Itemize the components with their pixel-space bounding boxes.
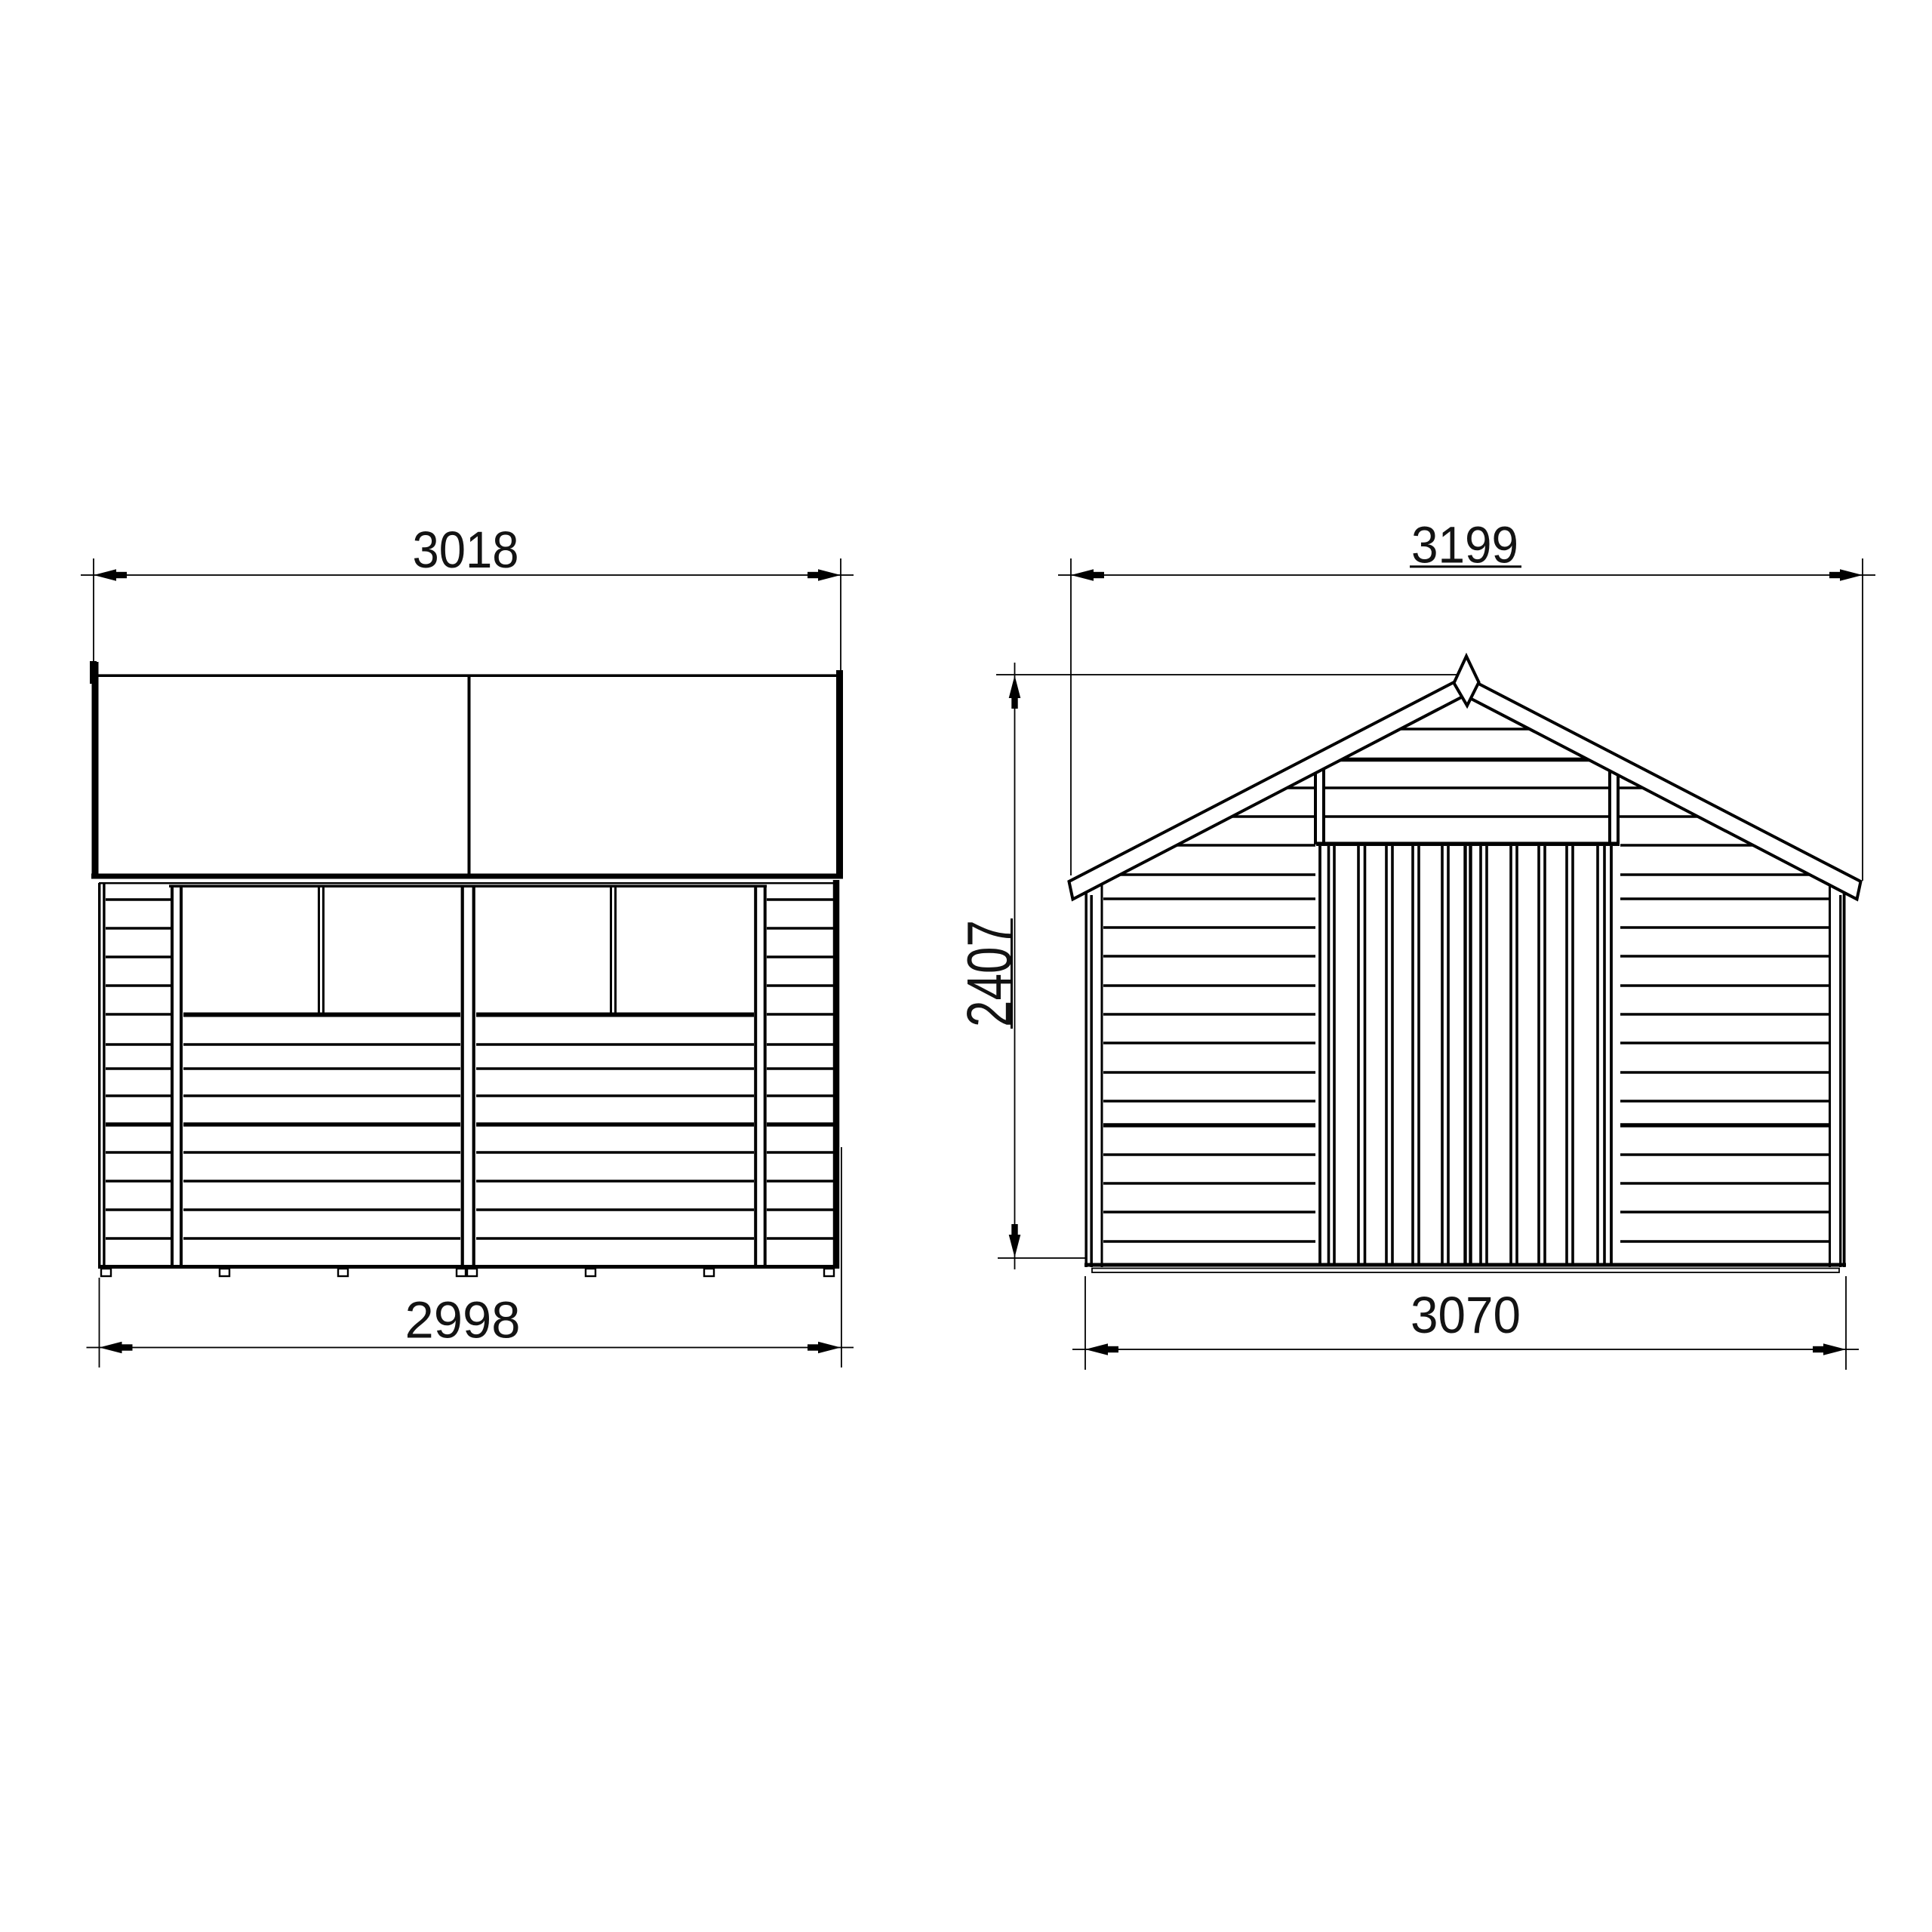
svg-text:3070: 3070 (1411, 1286, 1521, 1344)
svg-text:2407: 2407 (954, 920, 1024, 1027)
svg-text:2998: 2998 (405, 1291, 521, 1349)
svg-text:3018: 3018 (413, 521, 519, 579)
svg-text:3199: 3199 (1411, 516, 1518, 574)
